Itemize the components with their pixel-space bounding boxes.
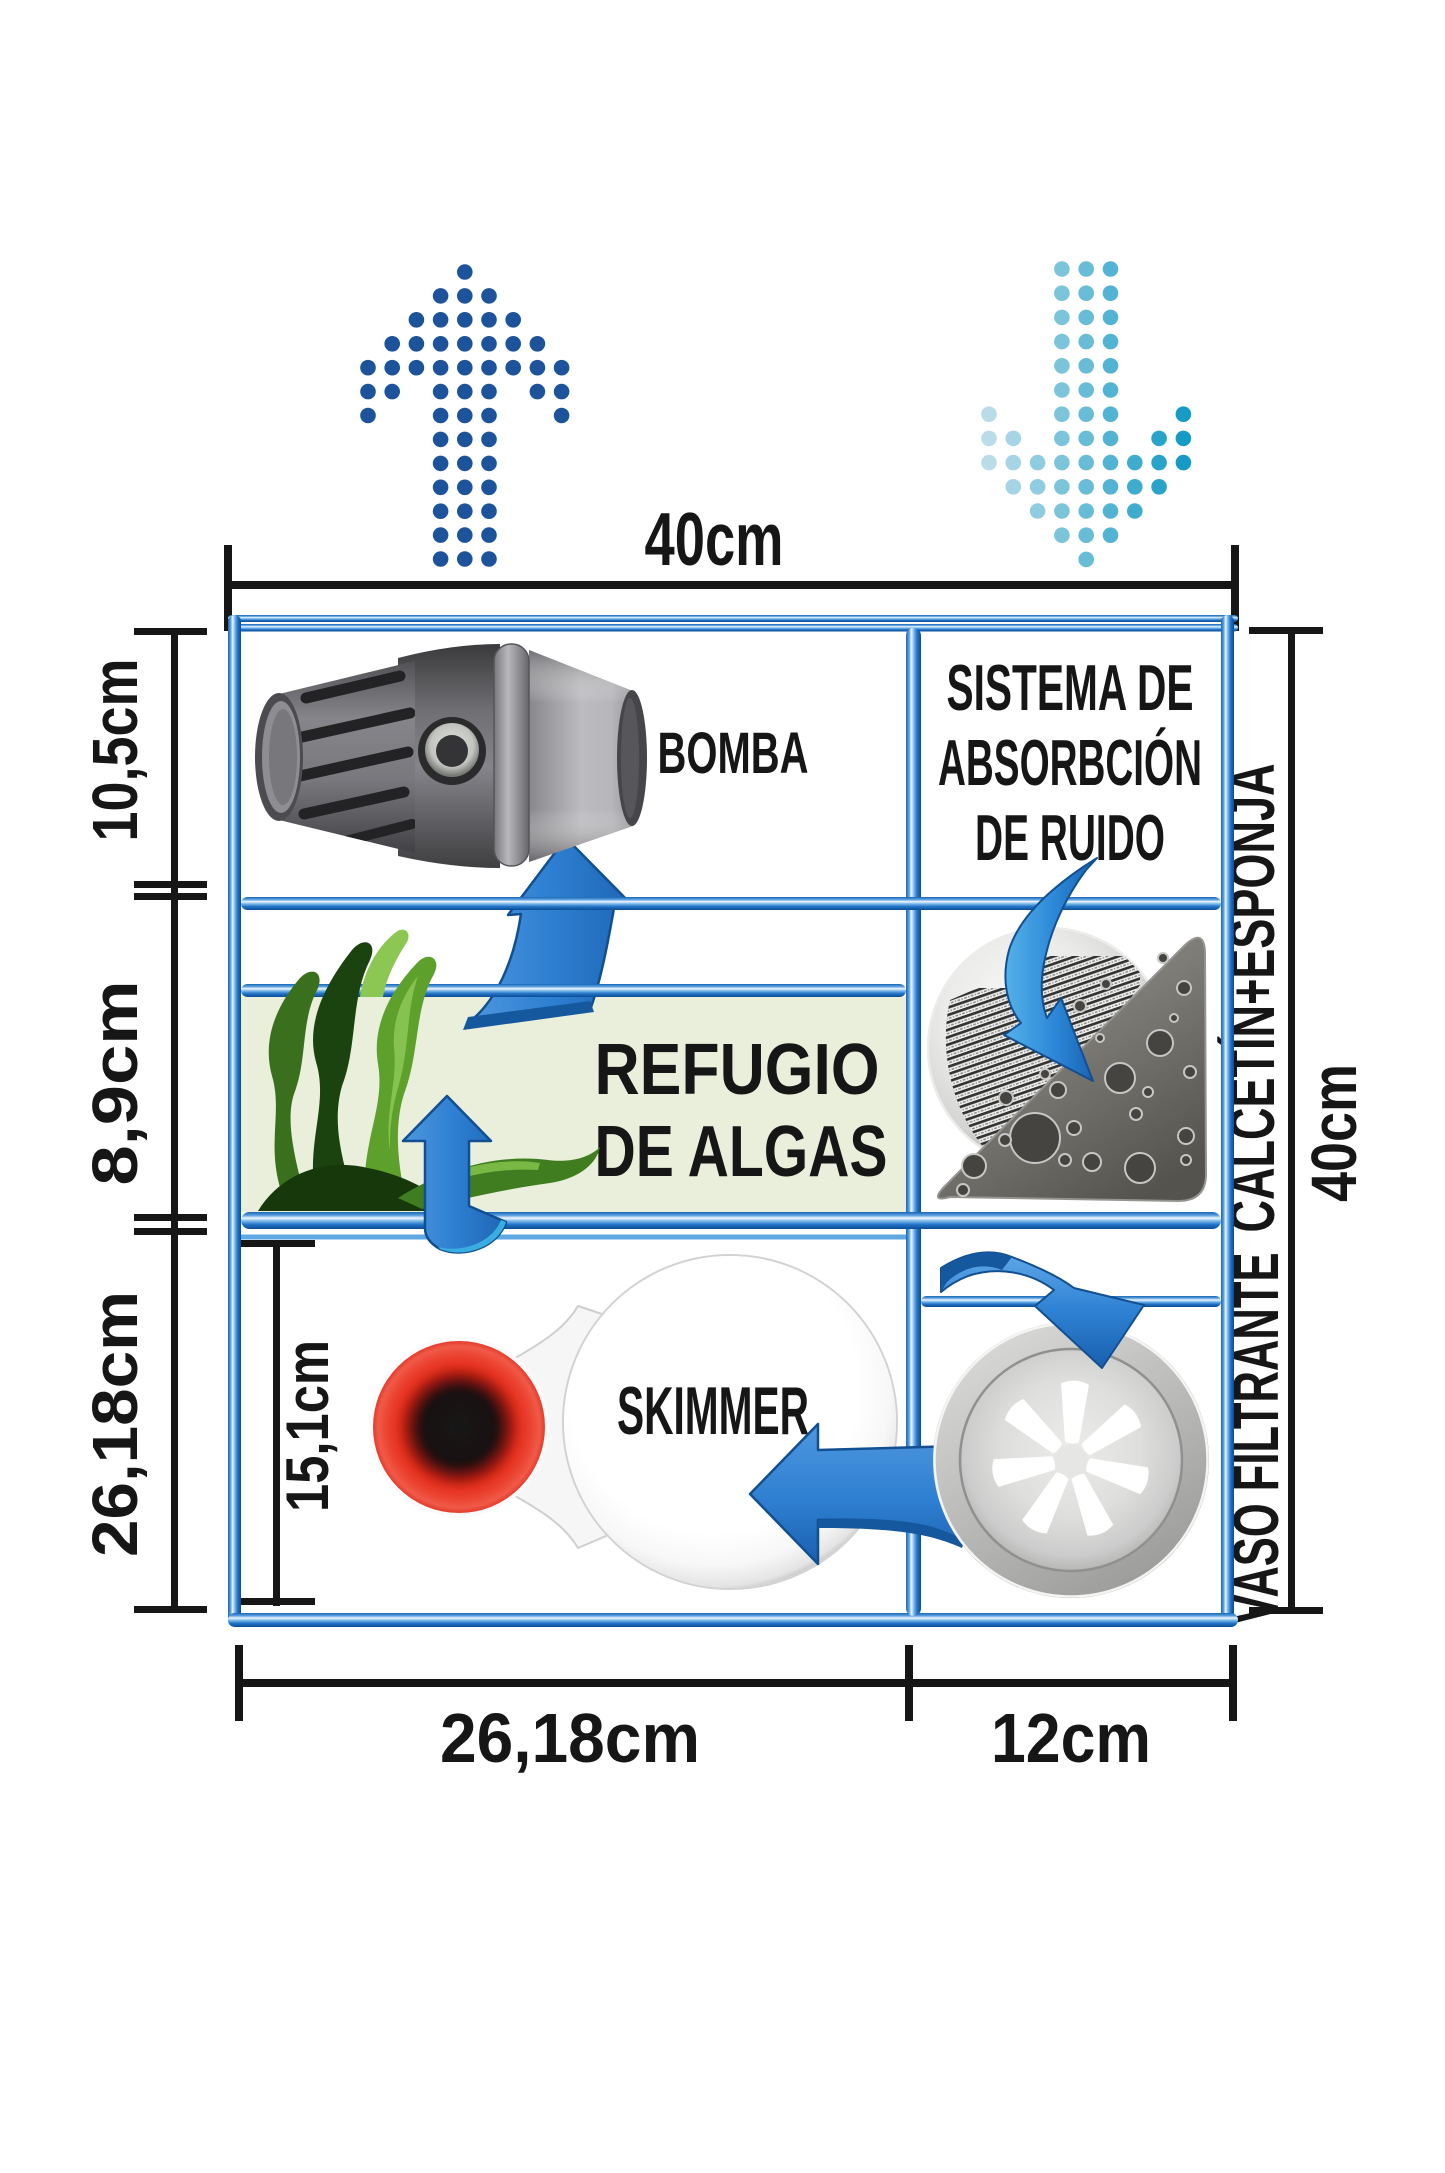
svg-text:8,9cm: 8,9cm <box>79 981 151 1186</box>
svg-text:26,18cm: 26,18cm <box>79 1291 151 1557</box>
svg-text:DE RUIDO: DE RUIDO <box>975 801 1165 874</box>
svg-text:SKIMMER: SKIMMER <box>617 1373 809 1449</box>
svg-text:40cm: 40cm <box>1298 1064 1370 1202</box>
svg-text:BOMBA: BOMBA <box>658 721 809 786</box>
svg-text:15,1cm: 15,1cm <box>274 1340 341 1512</box>
svg-text:10,5cm: 10,5cm <box>79 659 151 842</box>
svg-text:26,18cm: 26,18cm <box>440 1699 700 1777</box>
svg-text:12cm: 12cm <box>991 1699 1151 1777</box>
svg-text:SISTEMA DE: SISTEMA DE <box>947 651 1194 724</box>
svg-text:40cm: 40cm <box>645 497 784 581</box>
svg-text:DE ALGAS: DE ALGAS <box>595 1112 888 1192</box>
svg-text:ABSORBCIÓN: ABSORBCIÓN <box>938 726 1202 799</box>
svg-text:REFUGIO: REFUGIO <box>595 1030 880 1110</box>
